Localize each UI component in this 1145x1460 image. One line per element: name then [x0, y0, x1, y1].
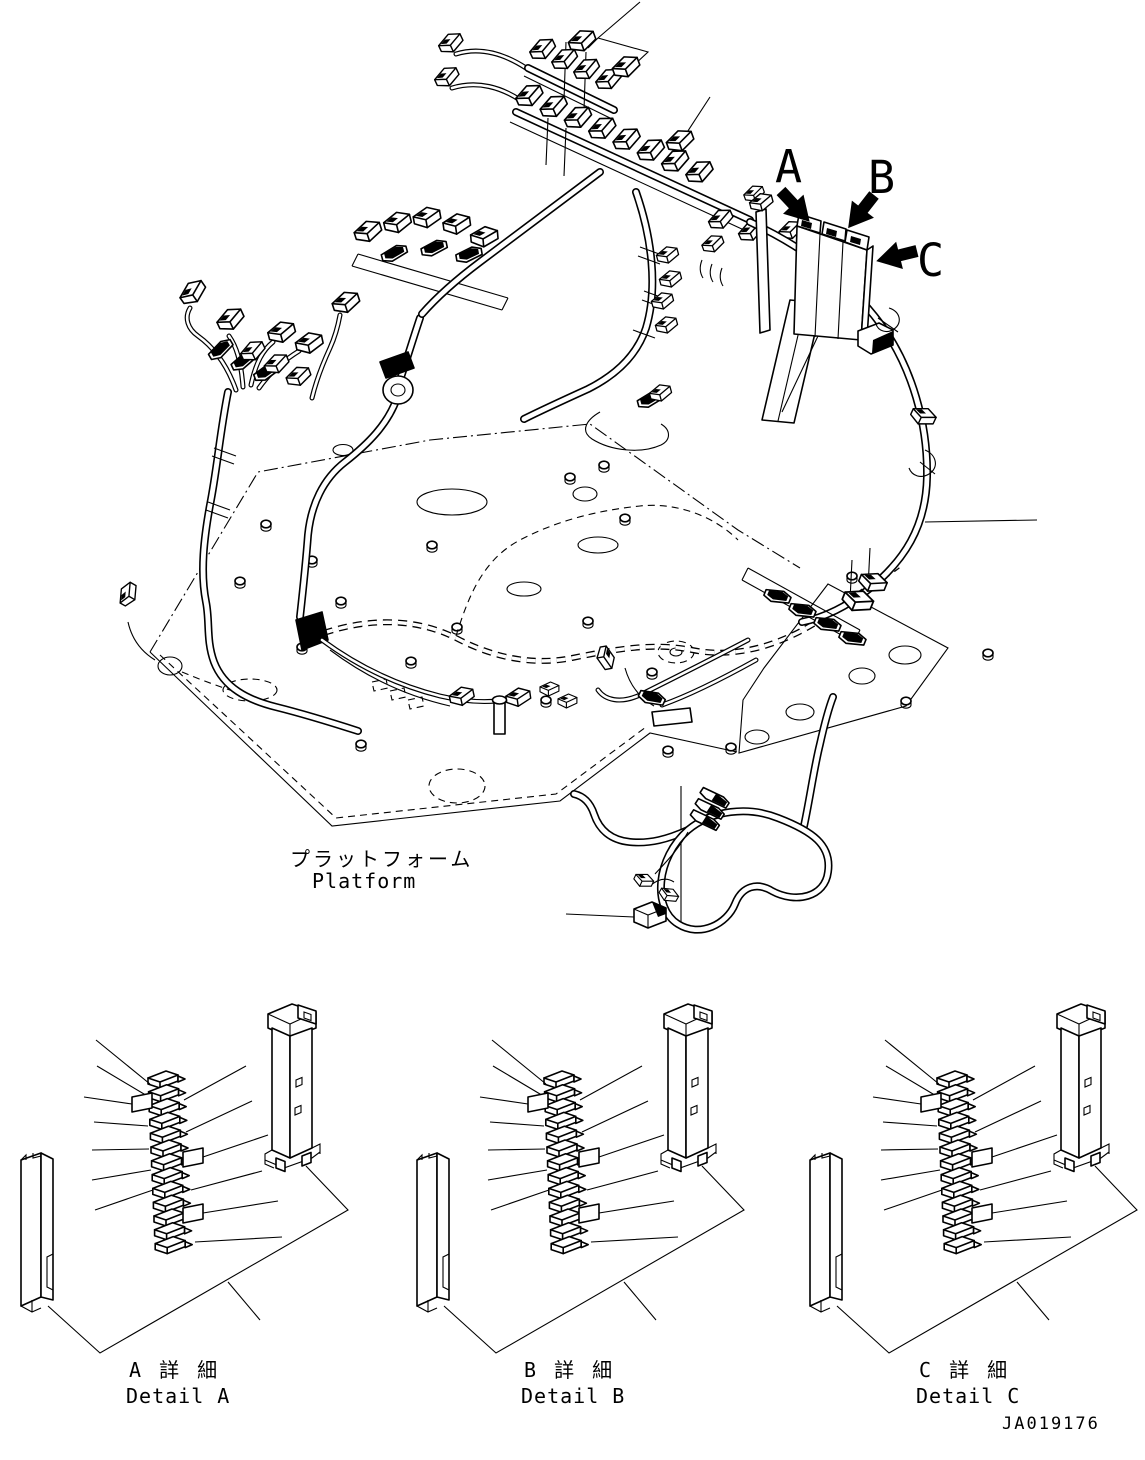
- right-connector-assembly: [595, 548, 889, 726]
- parts-diagram-page: A B C プラットフォーム Platform A 詳 細 Detail A B…: [0, 0, 1145, 1460]
- bottom-harness-loop: [574, 697, 833, 930]
- abc-connector-block: [748, 191, 899, 423]
- platform-label-jp: プラットフォーム: [290, 847, 473, 871]
- callout-a-label: A: [775, 140, 802, 193]
- detail-a-label-jp: A 詳 細: [129, 1358, 220, 1382]
- platform-label: プラットフォーム Platform: [290, 847, 473, 893]
- platform-plate: [150, 424, 800, 826]
- detail-view-c: C 詳 細 Detail C: [810, 1004, 1137, 1408]
- detail-b-label-en: Detail B: [521, 1384, 625, 1408]
- detail-view-a: A 詳 細 Detail A: [21, 1004, 348, 1408]
- callout-c-label: C: [917, 234, 944, 287]
- drawing-number: JA019176: [1002, 1414, 1100, 1434]
- platform-label-en: Platform: [312, 869, 416, 893]
- detail-c-label-jp: C 詳 細: [919, 1358, 1010, 1382]
- detail-a-label-en: Detail A: [126, 1384, 230, 1408]
- callout-c-arrow-icon: [873, 237, 921, 274]
- harness-diagram: A B C プラットフォーム Platform A 詳 細 Detail A B…: [0, 0, 1145, 1460]
- detail-c-label-en: Detail C: [916, 1384, 1020, 1408]
- central-harness-trunks: [422, 172, 683, 450]
- left-harness-branch: [115, 392, 577, 734]
- left-connector-cluster: [176, 277, 362, 398]
- detail-b-label-jp: B 詳 細: [524, 1358, 615, 1382]
- detail-view-b: B 詳 細 Detail B: [417, 1004, 744, 1408]
